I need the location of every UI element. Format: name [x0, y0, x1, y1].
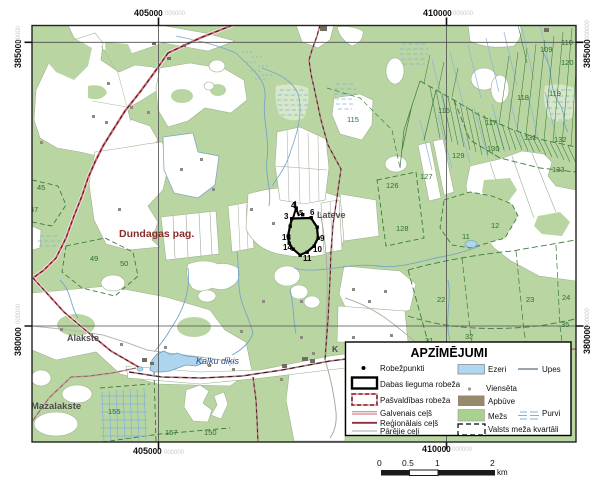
svg-text:K: K [332, 344, 339, 354]
svg-text:Lateve: Lateve [317, 210, 346, 220]
svg-text:120: 120 [561, 58, 574, 67]
svg-text:119: 119 [549, 89, 561, 98]
svg-text:Kaļķu dīķis: Kaļķu dīķis [196, 356, 240, 366]
svg-text:Ezeri: Ezeri [488, 365, 506, 374]
svg-text:10: 10 [313, 245, 322, 254]
svg-text:Purvi: Purvi [542, 409, 560, 418]
svg-text:133: 133 [552, 165, 565, 174]
svg-text:128: 128 [396, 224, 409, 233]
svg-text:000000: 000000 [16, 25, 22, 46]
svg-text:000000: 000000 [453, 11, 474, 17]
svg-text:0.5: 0.5 [402, 458, 414, 468]
svg-text:000000: 000000 [585, 307, 591, 328]
svg-text:Alakste: Alakste [67, 333, 99, 343]
svg-text:000000: 000000 [164, 450, 185, 456]
svg-text:50: 50 [120, 259, 128, 268]
svg-text:000000: 000000 [16, 303, 22, 324]
svg-text:2: 2 [490, 458, 495, 468]
svg-text:Upes: Upes [542, 365, 561, 374]
svg-text:132: 132 [554, 135, 567, 144]
svg-text:49: 49 [90, 254, 98, 263]
svg-text:Valsts meža kvartāli: Valsts meža kvartāli [488, 425, 559, 434]
svg-text:405000: 405000 [133, 446, 162, 456]
svg-text:115: 115 [347, 115, 359, 124]
svg-text:385000: 385000 [582, 39, 592, 68]
svg-text:410000: 410000 [422, 444, 451, 454]
svg-text:km: km [497, 468, 508, 477]
svg-text:Viensēta: Viensēta [486, 384, 518, 393]
svg-text:Apbūve: Apbūve [488, 397, 516, 406]
svg-text:Mežs: Mežs [488, 412, 507, 421]
svg-text:18: 18 [282, 233, 291, 242]
svg-text:24: 24 [562, 293, 570, 302]
svg-text:157: 157 [165, 428, 178, 437]
svg-text:405000: 405000 [134, 8, 163, 18]
svg-text:130: 130 [487, 144, 500, 153]
svg-text:109: 109 [540, 45, 553, 54]
svg-text:6: 6 [310, 208, 315, 217]
svg-text:150: 150 [204, 428, 217, 437]
svg-text:Mazalakste: Mazalakste [31, 401, 81, 412]
svg-text:35: 35 [561, 320, 569, 329]
svg-text:127: 127 [420, 172, 433, 181]
svg-text:11: 11 [462, 232, 470, 241]
svg-text:000000: 000000 [165, 11, 186, 17]
svg-text:155: 155 [108, 407, 121, 416]
svg-text:1: 1 [435, 458, 440, 468]
svg-text:23: 23 [526, 295, 534, 304]
svg-text:131: 131 [524, 133, 537, 142]
svg-text:000000: 000000 [452, 447, 473, 453]
svg-text:129: 129 [452, 151, 465, 160]
svg-text:0: 0 [377, 458, 382, 468]
svg-text:380000: 380000 [13, 327, 23, 356]
svg-text:4: 4 [291, 201, 296, 210]
svg-text:Pašvaldības robeža: Pašvaldības robeža [380, 396, 451, 405]
svg-text:116: 116 [438, 106, 450, 115]
svg-text:126: 126 [386, 181, 399, 190]
svg-text:Galvenais ceļš: Galvenais ceļš [380, 409, 432, 418]
svg-text:3: 3 [284, 212, 289, 221]
svg-text:Robežpunkti: Robežpunkti [380, 364, 425, 373]
svg-text:5: 5 [299, 208, 303, 217]
svg-text:Dundagas pag.: Dundagas pag. [119, 228, 194, 240]
svg-text:22: 22 [437, 295, 445, 304]
svg-text:118: 118 [517, 93, 529, 102]
svg-text:APZĪMĒJUMI: APZĪMĒJUMI [410, 346, 487, 360]
svg-text:45: 45 [37, 183, 45, 192]
svg-text:12: 12 [491, 221, 499, 230]
svg-text:9: 9 [320, 234, 325, 243]
svg-text:Dabas lieguma robeža: Dabas lieguma robeža [380, 380, 461, 389]
svg-text:Pārējie ceļi: Pārējie ceļi [380, 427, 419, 436]
svg-text:380000: 380000 [582, 325, 592, 354]
svg-text:410000: 410000 [423, 8, 452, 18]
svg-text:14: 14 [283, 243, 292, 252]
svg-text:117: 117 [485, 118, 497, 127]
svg-text:32: 32 [465, 332, 473, 341]
svg-text:000000: 000000 [585, 19, 591, 40]
svg-text:11: 11 [303, 254, 312, 263]
